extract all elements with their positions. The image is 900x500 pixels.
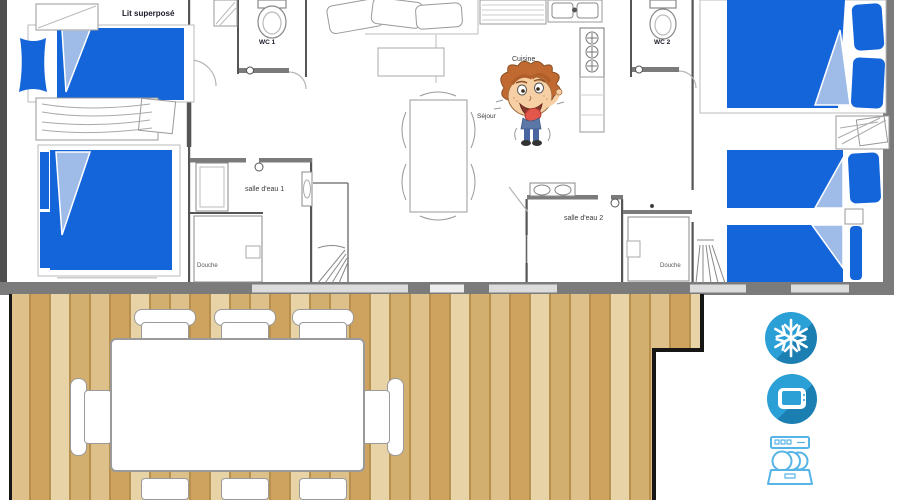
floor-plan: Lit superposé WC 1 Cuisine Séjour WC 2 s… — [0, 0, 900, 295]
floor-plan-drawing — [0, 0, 900, 295]
wall-left — [0, 0, 7, 295]
pillow — [851, 3, 884, 51]
deck-chair — [362, 390, 390, 444]
pillow — [848, 152, 882, 204]
pillow — [40, 212, 50, 268]
washbasin — [302, 172, 312, 206]
closet-column — [313, 183, 348, 283]
snowflake-icon — [765, 312, 817, 364]
wardrobe — [36, 98, 176, 140]
air-conditioning-badge — [765, 312, 817, 364]
label-bathroom1: salle d'eau 1 — [245, 186, 284, 193]
wardrobe — [836, 116, 889, 149]
deck-chair — [141, 478, 189, 500]
dishwasher-icon — [766, 435, 814, 487]
shelf-lines — [696, 240, 725, 283]
shower-area — [627, 217, 689, 281]
label-shower2: Douche — [660, 263, 681, 269]
deck-chair — [221, 478, 269, 500]
pillow — [40, 152, 49, 209]
deck-chair — [299, 478, 347, 500]
dishwasher-badge — [766, 435, 814, 492]
rug-line — [57, 277, 157, 279]
tv-icon — [767, 374, 817, 424]
stove — [580, 28, 604, 77]
deck-border — [652, 348, 656, 500]
walk-in-shower — [194, 216, 262, 282]
label-living-room: Séjour — [477, 114, 496, 121]
label-bathroom2: salle d'eau 2 — [564, 215, 603, 222]
kitchen-cabinet — [580, 77, 604, 132]
label-wc2: WC 2 — [654, 40, 670, 47]
deck-border — [9, 294, 12, 500]
mascot-character — [486, 58, 576, 150]
label-bunk-bed: Lit superposé — [122, 10, 174, 18]
dining-table — [410, 100, 467, 212]
deck-chair — [84, 390, 112, 444]
television-badge — [767, 374, 817, 424]
kitchen-sink — [548, 0, 602, 22]
pillow — [851, 57, 886, 109]
deck-border — [700, 294, 704, 352]
toilet — [650, 0, 676, 39]
shower-cabin — [196, 163, 228, 211]
label-shower1: Douche — [197, 263, 218, 269]
pillow — [19, 38, 47, 92]
nightstand — [845, 209, 863, 224]
kitchen-counter — [480, 0, 546, 24]
coffee-table — [378, 48, 444, 76]
washbasin-double — [530, 183, 575, 196]
pillow — [850, 226, 862, 280]
toilet — [258, 0, 286, 38]
outdoor-table — [110, 338, 365, 472]
label-wc1: WC 1 — [259, 40, 275, 47]
deck-border — [652, 348, 704, 352]
floorplan-page: { "floorplan": { "labels": { "bunk_bed":… — [0, 0, 900, 500]
label-kitchen: Cuisine — [512, 56, 535, 63]
